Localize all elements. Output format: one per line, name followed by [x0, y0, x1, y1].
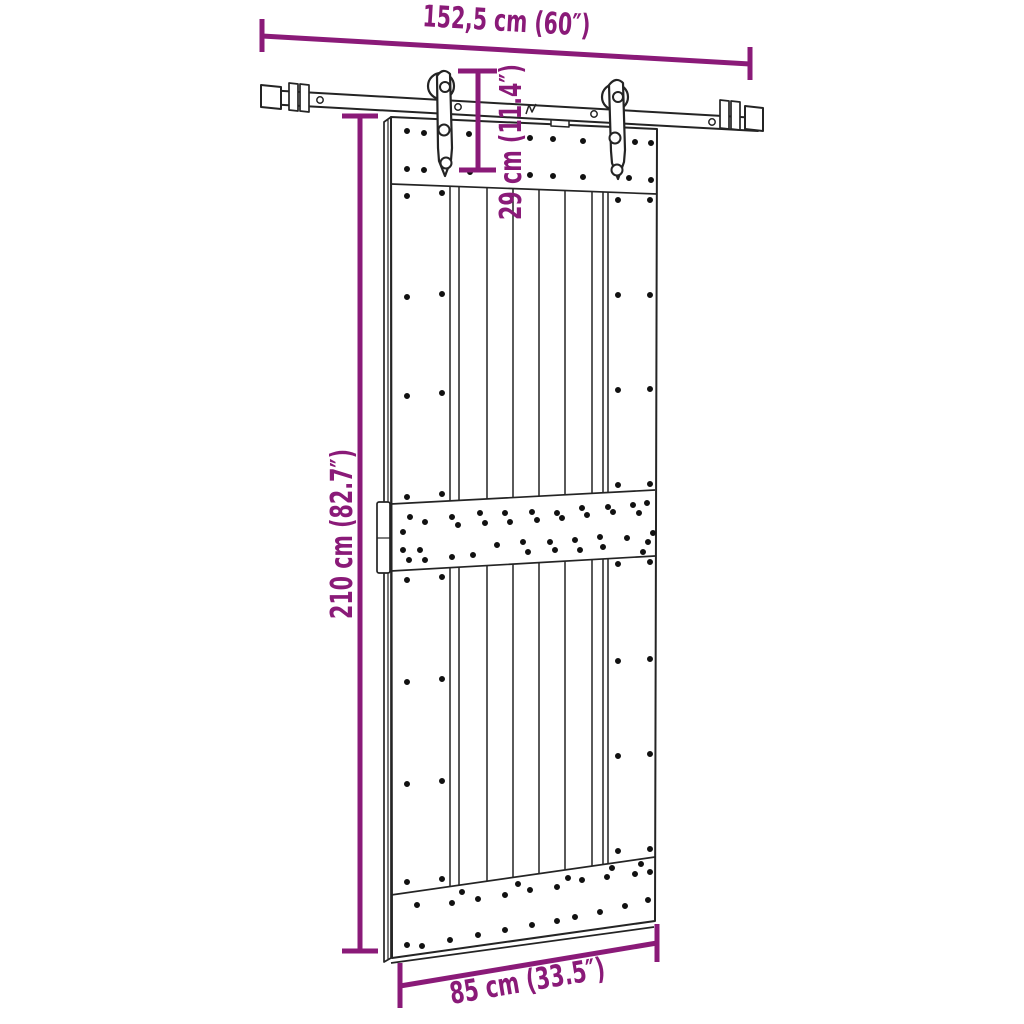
right-hanger-bolt-lower [612, 165, 623, 176]
barn-door [377, 117, 657, 963]
right-hanger-axle-bolt [613, 92, 623, 102]
rail-screw-4 [709, 119, 715, 125]
right-hanger-bolt-upper [610, 133, 621, 144]
left-hanger-axle-bolt [440, 82, 450, 92]
rail-screw-1 [317, 97, 323, 103]
rail-width-label: 152,5 cm (60″) [422, 0, 592, 44]
hanger-height-label: 29 cm (11.4″) [494, 64, 529, 220]
rail-screw-3 [591, 111, 597, 117]
door-height-label: 210 cm (82.7″) [325, 449, 360, 619]
rail-right-end-cap [745, 106, 763, 131]
left-hanger-bolt-upper [439, 125, 450, 136]
rail-width-line [262, 36, 750, 64]
diagram-canvas: 152,5 cm (60″) 29 cm (11.4″) 210 cm (82.… [0, 0, 1024, 1024]
rail-screw-2 [455, 104, 461, 110]
rail-left-end-cap [261, 85, 281, 109]
door-width-label: 85 cm (33.5″) [447, 951, 608, 1011]
door-face [391, 117, 657, 958]
barn-door-dimension-diagram: 152,5 cm (60″) 29 cm (11.4″) 210 cm (82.… [0, 0, 1024, 1024]
left-hanger-bolt-lower [441, 158, 452, 169]
